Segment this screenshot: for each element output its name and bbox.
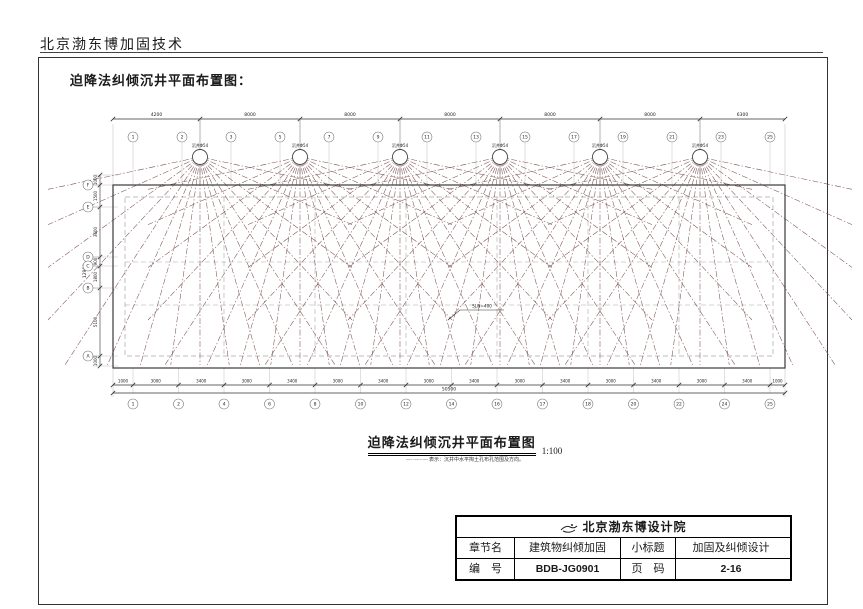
svg-text:1000: 1000	[93, 355, 98, 366]
svg-text:22: 22	[676, 402, 682, 408]
svg-text:1800: 1800	[93, 271, 98, 282]
svg-text:23: 23	[718, 135, 724, 141]
svg-text:C: C	[86, 264, 89, 270]
svg-text:沉井Φ54: 沉井Φ54	[392, 142, 409, 148]
plan-title: 迫降法纠倾沉井平面布置图	[368, 432, 536, 456]
svg-text:3400: 3400	[378, 379, 389, 384]
svg-text:3000: 3000	[151, 379, 162, 384]
svg-text:3400: 3400	[196, 379, 207, 384]
number-label: 编 号	[457, 559, 514, 579]
sinking-wells: 沉井Φ54沉井Φ54沉井Φ54沉井Φ54沉井Φ54沉井Φ54	[192, 119, 709, 185]
plan-legend: —··—··— 表示：沉井中水平掏土孔布孔范围及方向。	[300, 456, 630, 463]
number-value: BDB-JG0901	[514, 559, 620, 579]
svg-text:1000: 1000	[118, 379, 129, 384]
svg-text:SJ,N=400: SJ,N=400	[472, 304, 492, 309]
svg-text:17: 17	[571, 135, 577, 141]
svg-text:19: 19	[620, 135, 626, 141]
svg-text:2: 2	[177, 402, 180, 408]
svg-text:15: 15	[522, 135, 528, 141]
svg-text:3000: 3000	[424, 379, 435, 384]
svg-text:1: 1	[132, 135, 135, 141]
svg-text:1: 1	[132, 402, 135, 408]
svg-text:5100: 5100	[93, 316, 98, 327]
svg-text:21: 21	[669, 135, 675, 141]
svg-text:沉井Φ54: 沉井Φ54	[692, 142, 709, 148]
svg-text:F: F	[87, 183, 90, 189]
subtitle-value: 加固及纠倾设计	[675, 538, 786, 558]
svg-text:4: 4	[223, 402, 226, 408]
design-institute-logo	[560, 522, 578, 534]
svg-text:50500: 50500	[442, 387, 456, 393]
leader-annotation: SJ,N=400	[448, 304, 504, 321]
svg-text:沉井Φ54: 沉井Φ54	[592, 142, 609, 148]
svg-text:3400: 3400	[469, 379, 480, 384]
svg-text:1000: 1000	[93, 174, 98, 185]
svg-text:沉井Φ54: 沉井Φ54	[192, 142, 209, 148]
left-dimension-chain: 10001500360090018005100100012900	[82, 173, 102, 368]
svg-text:3000: 3000	[515, 379, 526, 384]
svg-text:7: 7	[328, 135, 331, 141]
svg-text:6: 6	[268, 402, 271, 408]
svg-text:3400: 3400	[742, 379, 753, 384]
svg-text:D: D	[86, 255, 90, 261]
bottom-axis-bubbles: 1246810121416171820222425	[128, 399, 775, 409]
svg-text:3600: 3600	[93, 226, 98, 237]
svg-text:17: 17	[540, 402, 546, 408]
svg-text:B: B	[86, 286, 89, 292]
chapter-label: 章节名	[457, 538, 514, 558]
svg-text:13: 13	[473, 135, 479, 141]
svg-text:沉井Φ54: 沉井Φ54	[292, 142, 309, 148]
title-block-office-row: 北京渤东博设计院	[457, 517, 790, 538]
svg-text:3000: 3000	[242, 379, 253, 384]
svg-text:3400: 3400	[560, 379, 571, 384]
top-axis-bubbles: 1235791113151719212325	[128, 132, 775, 142]
svg-text:10: 10	[358, 402, 364, 408]
bottom-dimension-chain: 1000300034003000340030003400300034003000…	[111, 379, 787, 396]
svg-text:沉井Φ54: 沉井Φ54	[492, 142, 509, 148]
svg-text:1000: 1000	[772, 379, 783, 384]
soil-extraction-rays	[48, 157, 852, 365]
top-dimension-chain: 4200800080008000800080006300	[111, 112, 787, 121]
chapter-value: 建筑物纠倾加固	[514, 538, 620, 558]
subtitle-label: 小标题	[620, 538, 675, 558]
svg-text:16: 16	[494, 402, 500, 408]
title-block-row-2: 编 号 BDB-JG0901 页 码 2-16	[457, 558, 790, 579]
svg-text:3400: 3400	[651, 379, 662, 384]
plan-scale: 1:100	[542, 446, 563, 456]
svg-text:5: 5	[279, 135, 282, 141]
svg-text:14: 14	[449, 402, 455, 408]
svg-text:6300: 6300	[737, 112, 749, 118]
svg-text:3: 3	[230, 135, 233, 141]
svg-text:8000: 8000	[344, 112, 356, 118]
svg-text:25: 25	[767, 135, 773, 141]
title-block-row-1: 章节名 建筑物纠倾加固 小标题 加固及纠倾设计	[457, 538, 790, 558]
svg-text:11: 11	[424, 135, 430, 141]
svg-text:12: 12	[403, 402, 409, 408]
svg-text:8: 8	[314, 402, 317, 408]
svg-text:E: E	[87, 205, 90, 211]
svg-text:3000: 3000	[606, 379, 617, 384]
title-block: 北京渤东博设计院 章节名 建筑物纠倾加固 小标题 加固及纠倾设计 编 号 BDB…	[455, 515, 792, 581]
svg-text:25: 25	[767, 402, 773, 408]
title-block-office: 北京渤东博设计院	[582, 520, 686, 534]
svg-text:1500: 1500	[93, 190, 98, 201]
page-label: 页 码	[620, 559, 675, 579]
page-value: 2-16	[675, 559, 786, 579]
svg-text:24: 24	[722, 402, 728, 408]
svg-text:3400: 3400	[287, 379, 298, 384]
svg-text:3000: 3000	[333, 379, 344, 384]
svg-text:8000: 8000	[544, 112, 556, 118]
svg-text:4200: 4200	[151, 112, 163, 118]
construction-lines	[0, 0, 785, 397]
svg-text:8000: 8000	[244, 112, 256, 118]
left-axis-bubbles: FEDCBA	[83, 180, 100, 361]
svg-text:900: 900	[93, 257, 98, 265]
svg-text:9: 9	[377, 135, 380, 141]
svg-text:3000: 3000	[697, 379, 708, 384]
plan-title-wrap: 迫降法纠倾沉井平面布置图1:100	[300, 432, 630, 456]
svg-text:8000: 8000	[444, 112, 456, 118]
svg-text:20: 20	[631, 402, 637, 408]
svg-text:2: 2	[181, 135, 184, 141]
svg-text:18: 18	[585, 402, 591, 408]
svg-text:8000: 8000	[644, 112, 656, 118]
